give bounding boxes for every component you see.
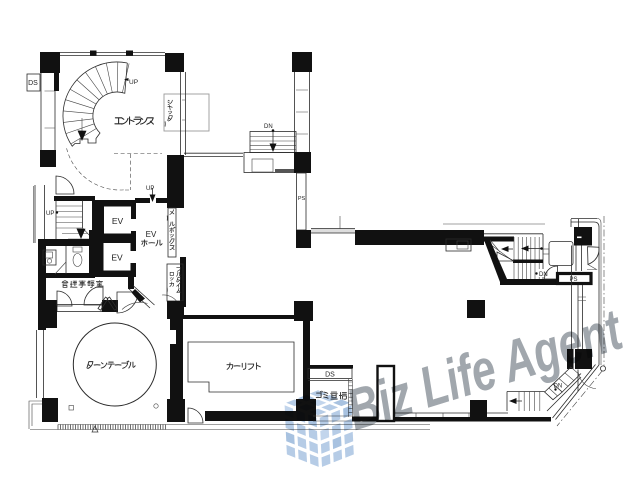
svg-text:PS: PS [569, 277, 577, 283]
svg-text:EV: EV [146, 230, 157, 239]
svg-text:DS: DS [28, 80, 38, 87]
svg-text:EV: EV [111, 253, 123, 263]
svg-text:DS: DS [325, 372, 335, 379]
svg-text:UP: UP [129, 79, 138, 86]
svg-text:PS: PS [298, 196, 306, 202]
svg-text:DN: DN [264, 124, 273, 130]
svg-text:UP: UP [46, 211, 54, 217]
svg-text:UP: UP [146, 186, 154, 192]
svg-text:EV: EV [112, 216, 124, 226]
